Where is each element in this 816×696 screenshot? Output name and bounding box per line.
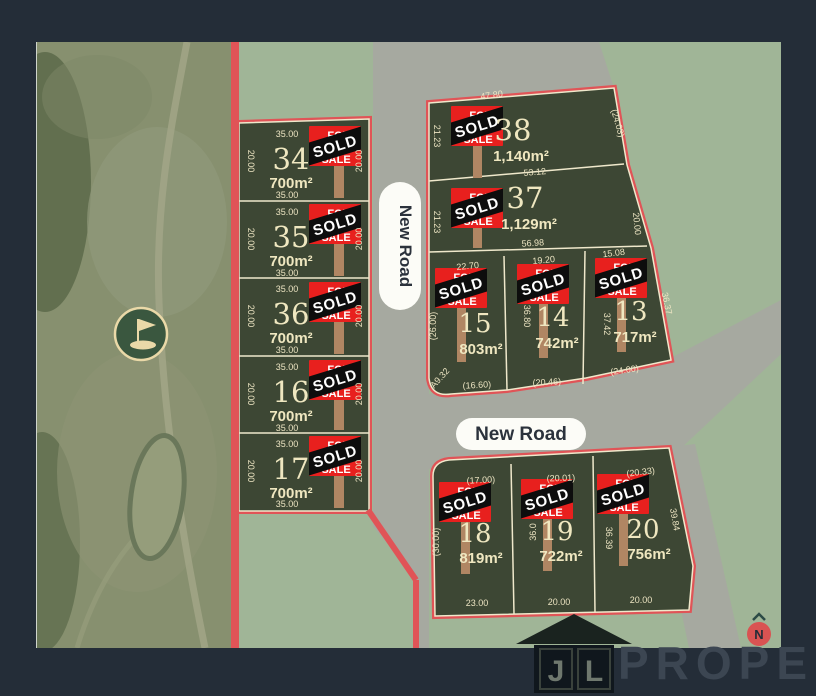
lot-19-dim-top: (20.01) bbox=[546, 473, 575, 484]
logo-box-l bbox=[578, 649, 610, 689]
lot-37-dim-left: 21.23 bbox=[432, 211, 442, 234]
golf-course-aerial bbox=[37, 42, 231, 648]
lot-36-number: 36 bbox=[273, 297, 310, 331]
lot-15-area: 803m² bbox=[459, 341, 502, 358]
lot-35-dim-bottom: 35.00 bbox=[276, 268, 299, 278]
sold-sign-lot-19 bbox=[511, 479, 582, 520]
lot-36-dim-left: 20.00 bbox=[246, 305, 256, 328]
lot-18-dim-top: (17.00) bbox=[466, 474, 495, 485]
lot-38-area: 1,140m² bbox=[493, 148, 549, 165]
lot-34-dim-left: 20.00 bbox=[246, 150, 256, 173]
lot-20-dim-bottom: 20.00 bbox=[630, 595, 653, 605]
new-road-horizontal-label: New Road bbox=[475, 424, 567, 445]
sold-sign-lot-13 bbox=[585, 258, 656, 299]
lot-17-dim-left: 20.00 bbox=[246, 460, 256, 483]
lot-34-dim-bottom: 35.00 bbox=[276, 190, 299, 200]
lot-35-dim-right: 20.00 bbox=[354, 228, 364, 251]
lot-17-dim-top: 35.00 bbox=[276, 439, 299, 449]
lot-36-dim-bottom: 35.00 bbox=[276, 345, 299, 355]
lot-18-dim-left: (30.00) bbox=[431, 528, 441, 557]
logo-letter-l: L bbox=[585, 655, 603, 688]
lot-18-number: 18 bbox=[458, 519, 491, 549]
lot-16-dim-bottom: 35.00 bbox=[276, 423, 299, 433]
lot-35-dim-left: 20.00 bbox=[246, 228, 256, 251]
lot-14-area: 742m² bbox=[535, 335, 578, 352]
lot-16-dim-left: 20.00 bbox=[246, 383, 256, 406]
lot-36-dim-right: 20.00 bbox=[354, 305, 364, 328]
lot-19-number: 19 bbox=[540, 517, 573, 547]
estate-map: FOR SALE SOLD bbox=[36, 42, 781, 648]
lot-17-number: 17 bbox=[273, 452, 310, 486]
lot-16-number: 16 bbox=[273, 375, 310, 409]
lot-37-number: 37 bbox=[507, 181, 544, 215]
lot-18-area: 819m² bbox=[459, 550, 502, 567]
lot-14-dim-left: 36.80 bbox=[522, 305, 532, 328]
bottom-band bbox=[0, 648, 816, 696]
lot-36-dim-top: 35.00 bbox=[276, 284, 299, 294]
sold-sign-lot-14 bbox=[507, 264, 578, 305]
lot-13-dim-left: 37.42 bbox=[602, 313, 612, 336]
lot-20-area: 756m² bbox=[627, 546, 670, 563]
lot-15-dim-bottom: (16.60) bbox=[462, 379, 491, 390]
subdivision-plan: FOR SALE SOLD bbox=[0, 0, 816, 696]
lot-35-dim-top: 35.00 bbox=[276, 207, 299, 217]
lot-20-number: 20 bbox=[626, 515, 659, 545]
lot-15-dim-left: (26.00) bbox=[428, 312, 438, 341]
compass-n-label: N bbox=[754, 627, 763, 642]
lot-34-dim-top: 35.00 bbox=[276, 129, 299, 139]
new-road-vertical-label: New Road bbox=[396, 205, 415, 287]
lot-19-area: 722m² bbox=[539, 548, 582, 565]
lot-18-dim-bottom: 23.00 bbox=[466, 598, 489, 608]
lot-14-number: 14 bbox=[536, 303, 569, 333]
sold-sign-lot-18 bbox=[429, 482, 500, 523]
lot-34-dim-right: 20.00 bbox=[354, 150, 364, 173]
lot-20-dim-left: 36.39 bbox=[604, 527, 614, 550]
map-canvas: FOR SALE SOLD bbox=[37, 42, 781, 648]
lot-13-area: 717m² bbox=[613, 329, 656, 346]
lot-37-dim-bottom: 56.98 bbox=[521, 237, 544, 249]
sold-sign-lot-20 bbox=[587, 474, 658, 515]
lot-17-dim-right: 20.00 bbox=[354, 460, 364, 483]
golf-hole-icon bbox=[115, 308, 167, 360]
lot-19-dim-left: 36.0 bbox=[528, 523, 538, 541]
lot-34-number: 34 bbox=[273, 142, 310, 176]
lot-15-number: 15 bbox=[458, 309, 491, 339]
logo-box-j bbox=[540, 649, 572, 689]
new-road-horizontal-pill: New Road bbox=[456, 418, 586, 450]
sold-sign-lot-15 bbox=[425, 268, 496, 309]
logo-body bbox=[534, 645, 614, 693]
lot-35-number: 35 bbox=[273, 220, 310, 254]
lot-19-dim-bottom: 20.00 bbox=[548, 597, 571, 607]
lot-38-number: 38 bbox=[495, 113, 532, 147]
logo-letter-j: J bbox=[548, 655, 565, 688]
lot-13-number: 13 bbox=[614, 297, 647, 327]
lot-17-dim-bottom: 35.00 bbox=[276, 499, 299, 509]
new-road-vertical-pill: New Road bbox=[379, 182, 421, 310]
lot-38-dim-bottom: 53.12 bbox=[523, 166, 546, 178]
lot-37-area: 1,129m² bbox=[501, 216, 557, 233]
lot-16-dim-top: 35.00 bbox=[276, 362, 299, 372]
lot-38-dim-left: 21.23 bbox=[432, 125, 442, 148]
lot-14-dim-bottom: (20.46) bbox=[532, 376, 561, 387]
lot-16-dim-right: 20.00 bbox=[354, 383, 364, 406]
